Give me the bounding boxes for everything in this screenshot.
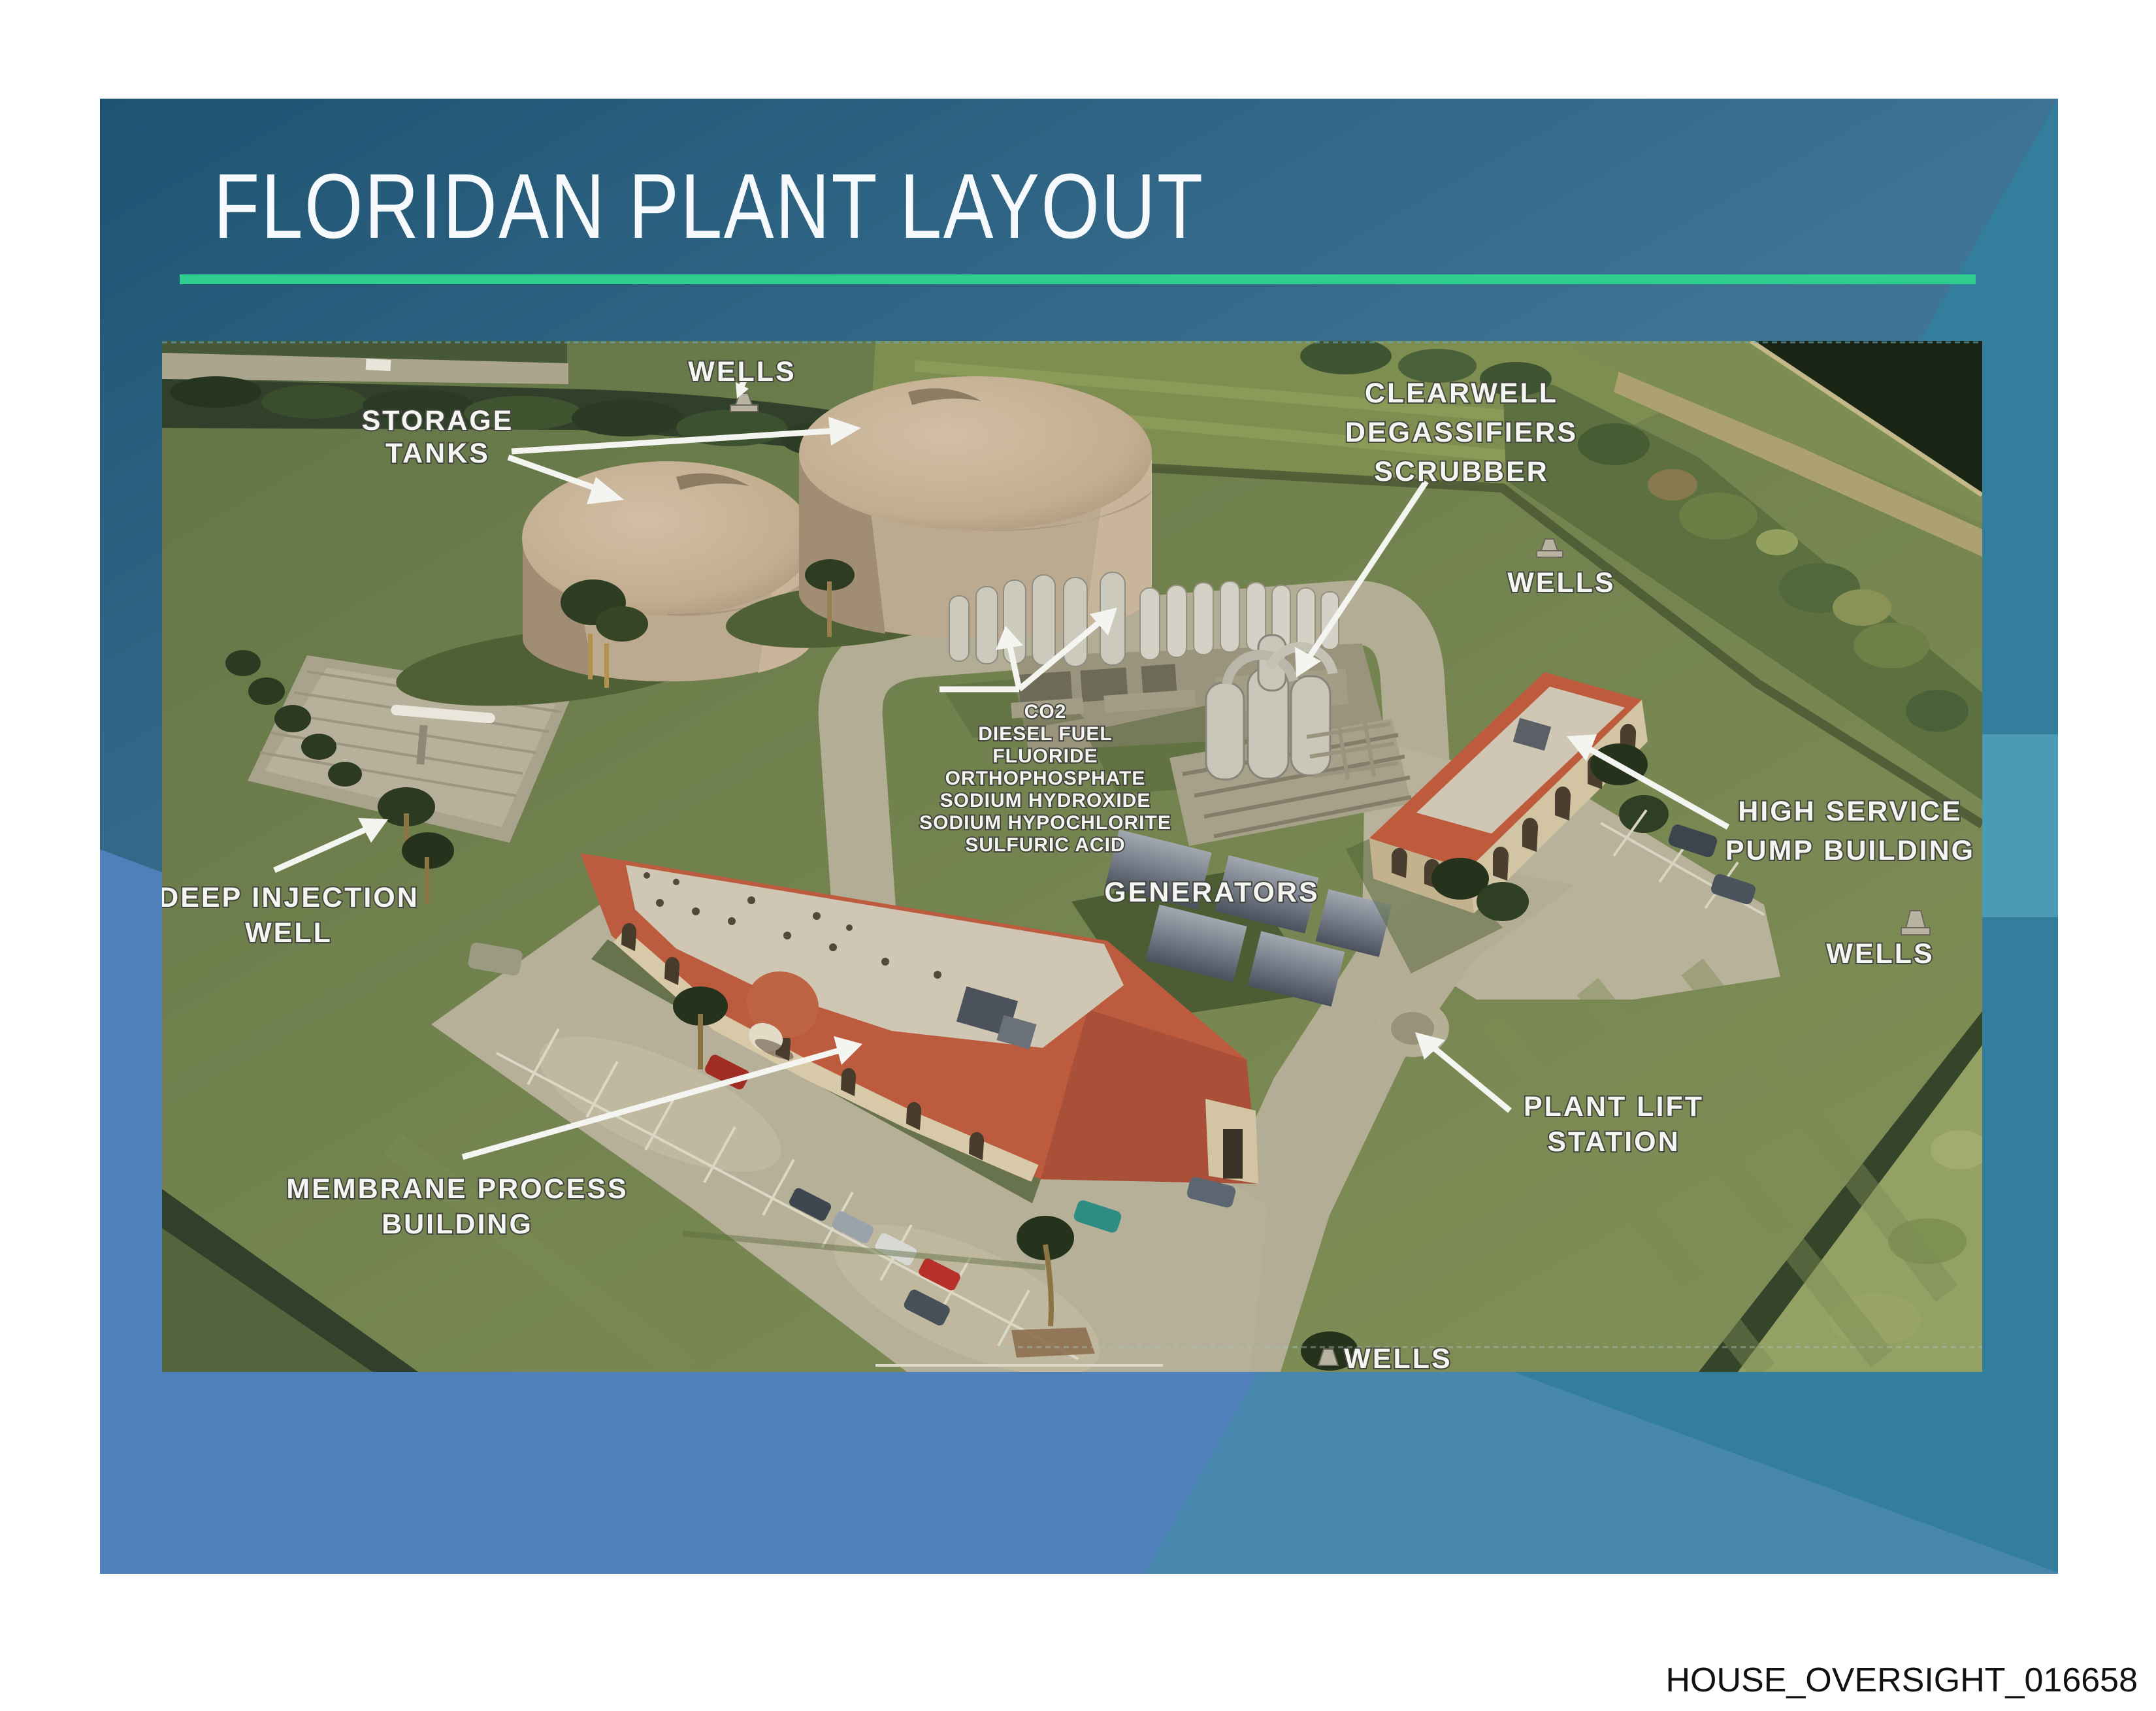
svg-text:DEGASSIFIERS: DEGASSIFIERS (1345, 417, 1578, 448)
svg-text:WELL: WELL (245, 917, 333, 949)
svg-text:HIGH SERVICE: HIGH SERVICE (1738, 796, 1962, 827)
svg-text:WELLS: WELLS (688, 356, 796, 387)
svg-text:BUILDING: BUILDING (382, 1209, 533, 1240)
svg-text:WELLS: WELLS (1507, 567, 1615, 598)
svg-text:PUMP BUILDING: PUMP BUILDING (1725, 835, 1975, 866)
svg-text:DIESEL FUEL: DIESEL FUEL (978, 723, 1112, 745)
svg-text:MEMBRANE PROCESS: MEMBRANE PROCESS (286, 1173, 628, 1205)
svg-text:CLEARWELL: CLEARWELL (1365, 378, 1558, 409)
svg-text:STATION: STATION (1547, 1126, 1680, 1158)
svg-text:SODIUM HYPOCHLORITE: SODIUM HYPOCHLORITE (919, 812, 1171, 834)
svg-text:PLANT LIFT: PLANT LIFT (1524, 1091, 1704, 1122)
svg-text:TANKS: TANKS (385, 438, 490, 469)
svg-text:SULFURIC ACID: SULFURIC ACID (965, 834, 1125, 856)
svg-text:CO2: CO2 (1024, 701, 1067, 723)
svg-text:WELLS: WELLS (1826, 938, 1934, 970)
svg-text:DEEP INJECTION: DEEP INJECTION (162, 882, 419, 913)
svg-text:SODIUM HYDROXIDE: SODIUM HYDROXIDE (940, 790, 1151, 811)
svg-text:ORTHOPHOSPHATE: ORTHOPHOSPHATE (945, 768, 1146, 789)
svg-text:GENERATORS: GENERATORS (1104, 877, 1319, 908)
svg-text:SCRUBBER: SCRUBBER (1374, 456, 1549, 487)
svg-text:STORAGE: STORAGE (362, 405, 514, 436)
svg-text:WELLS: WELLS (1344, 1343, 1452, 1372)
svg-text:FLUORIDE: FLUORIDE (992, 745, 1098, 767)
